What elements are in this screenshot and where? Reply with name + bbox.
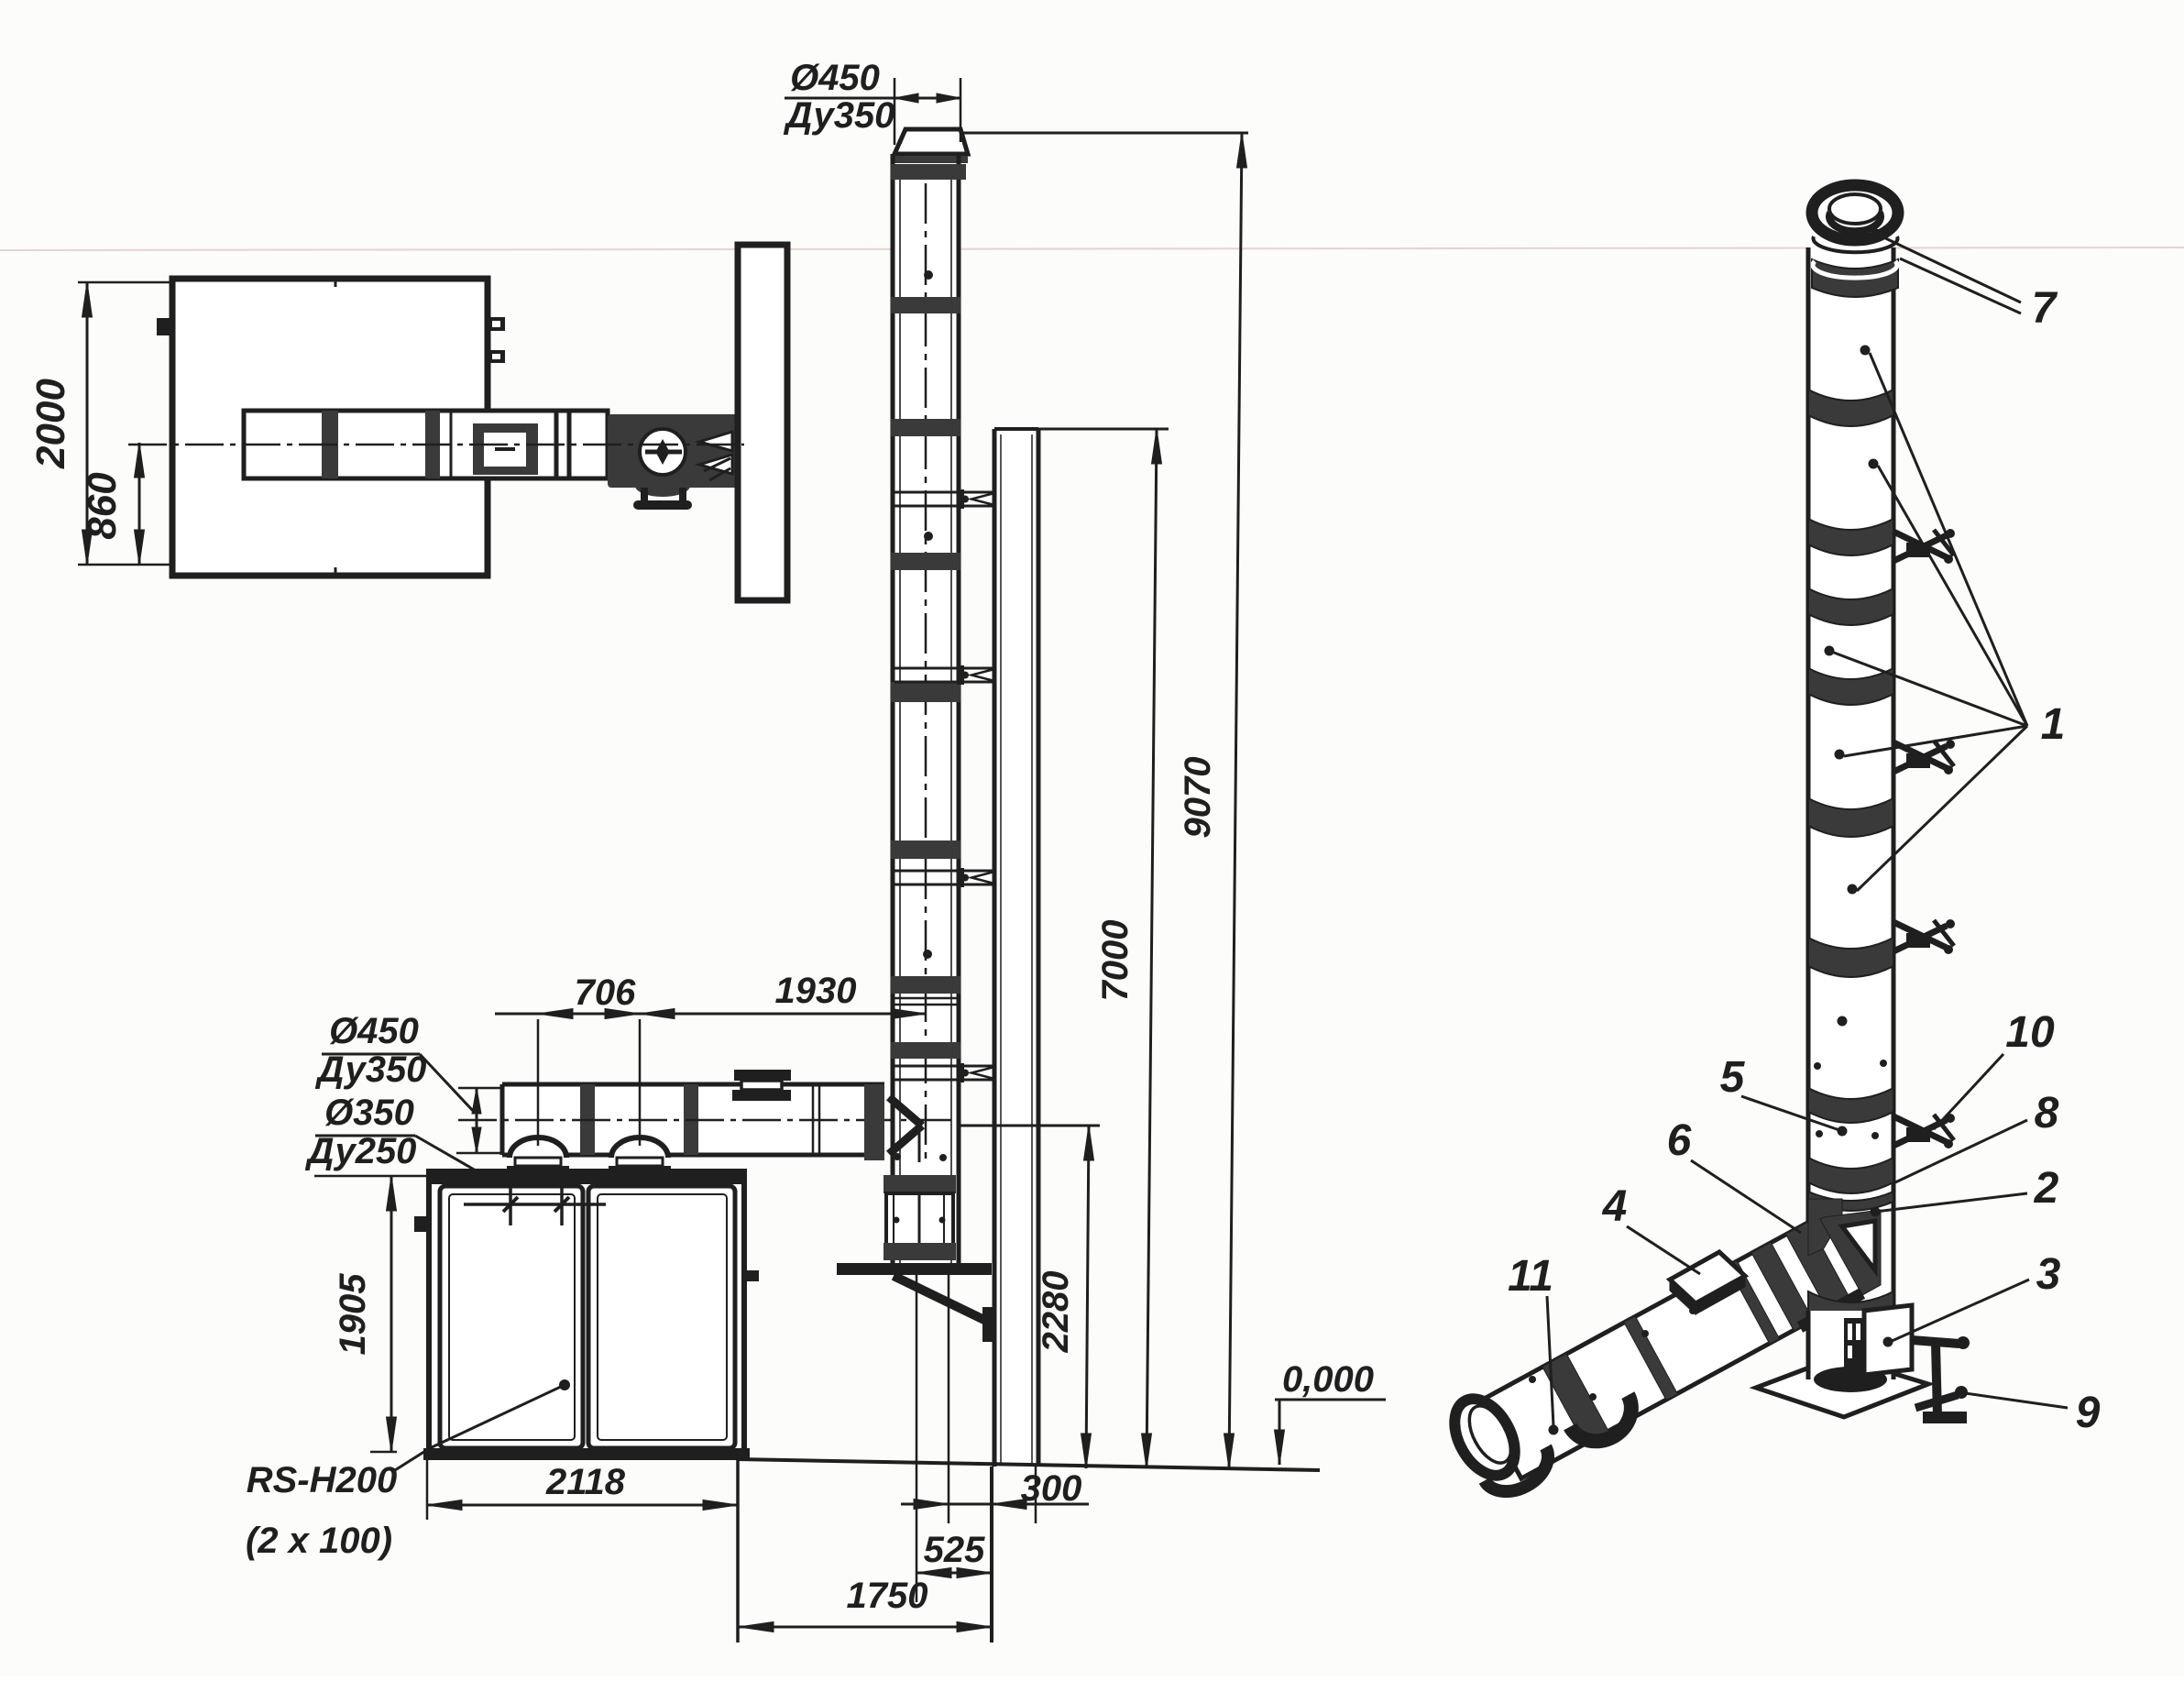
svg-text:4: 4 [1602, 1182, 1628, 1231]
svg-text:9: 9 [2076, 1389, 2101, 1437]
svg-text:1: 1 [2041, 700, 2066, 749]
svg-text:1750: 1750 [847, 1576, 928, 1616]
svg-text:2280: 2280 [1036, 1271, 1076, 1354]
svg-text:706: 706 [575, 972, 636, 1013]
svg-text:5: 5 [1720, 1053, 1746, 1102]
svg-text:300: 300 [1021, 1468, 1082, 1509]
svg-text:Ду350: Ду350 [784, 95, 895, 136]
svg-text:Ø450: Ø450 [329, 1011, 419, 1051]
svg-text:0,000: 0,000 [1282, 1359, 1374, 1400]
svg-text:3: 3 [2036, 1250, 2061, 1299]
svg-text:Ду350: Ду350 [315, 1049, 427, 1090]
svg-text:2118: 2118 [545, 1462, 626, 1502]
svg-text:1905: 1905 [333, 1273, 373, 1356]
svg-text:525: 525 [924, 1530, 985, 1570]
svg-text:8: 8 [2035, 1089, 2059, 1137]
svg-text:860: 860 [80, 472, 125, 540]
svg-text:Ду250: Ду250 [305, 1131, 417, 1171]
svg-text:7000: 7000 [1095, 920, 1136, 1002]
svg-text:2000: 2000 [28, 379, 73, 469]
svg-text:Ø350: Ø350 [324, 1093, 414, 1133]
svg-text:2: 2 [2034, 1164, 2059, 1213]
svg-text:Ø450: Ø450 [790, 58, 880, 98]
svg-text:11: 11 [1508, 1252, 1553, 1301]
svg-text:(2 x 100): (2 x 100) [246, 1521, 392, 1561]
svg-text:9070: 9070 [1178, 757, 1218, 839]
svg-text:RS-H200: RS-H200 [247, 1460, 398, 1500]
svg-text:10: 10 [2005, 1008, 2055, 1057]
svg-text:1930: 1930 [775, 971, 857, 1011]
svg-text:7: 7 [2032, 284, 2058, 333]
svg-text:6: 6 [1667, 1116, 1692, 1165]
